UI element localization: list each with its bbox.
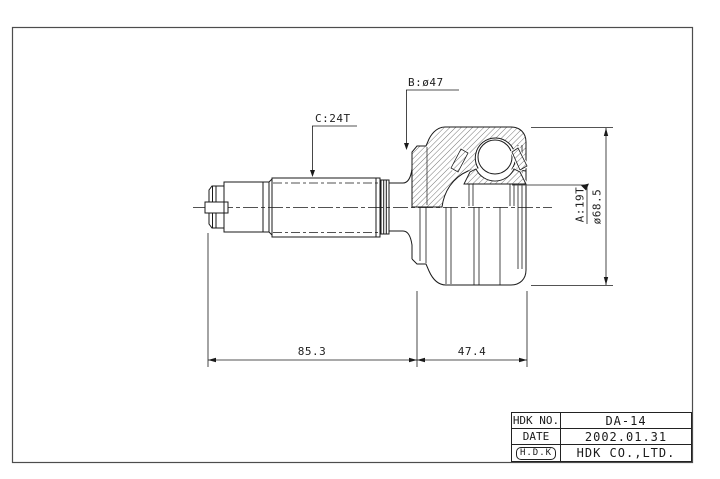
boot-groove [381,180,389,234]
title-block-row-date: DATE 2002.01.31 [512,429,691,445]
bearing-ball [478,140,512,174]
inner-race-spline-bore [469,184,514,206]
label-spline-b: B:ø47 [408,76,444,89]
label-outer-diameter: ø68.5 [591,177,604,237]
cv-joint-technical-drawing [0,0,720,479]
sheet-border [13,28,693,463]
label-length-shaft: 85.3 [282,345,342,358]
title-block: HDK NO. DA-14 DATE 2002.01.31 H.D.K HDK … [511,412,692,462]
date-label: DATE [512,429,561,444]
label-length-joint: 47.4 [442,345,502,358]
date-value: 2002.01.31 [561,429,691,444]
hdk-logo-badge: H.D.K [516,447,556,460]
hdk-no-value: DA-14 [561,413,691,428]
label-spline-c: C:24T [315,112,351,125]
title-block-row-company: H.D.K HDK CO.,LTD. [512,445,691,461]
drawing-sheet: B:ø47 C:24T 85.3 47.4 A:19T ø68.5 HDK NO… [0,0,720,479]
hdk-logo: H.D.K [512,445,561,461]
title-block-row-number: HDK NO. DA-14 [512,413,691,429]
hdk-no-label: HDK NO. [512,413,561,428]
company-name: HDK CO.,LTD. [561,445,691,461]
axle-shaft [205,152,412,259]
inner-race [464,169,526,206]
label-spline-a: A:19T [574,175,587,235]
